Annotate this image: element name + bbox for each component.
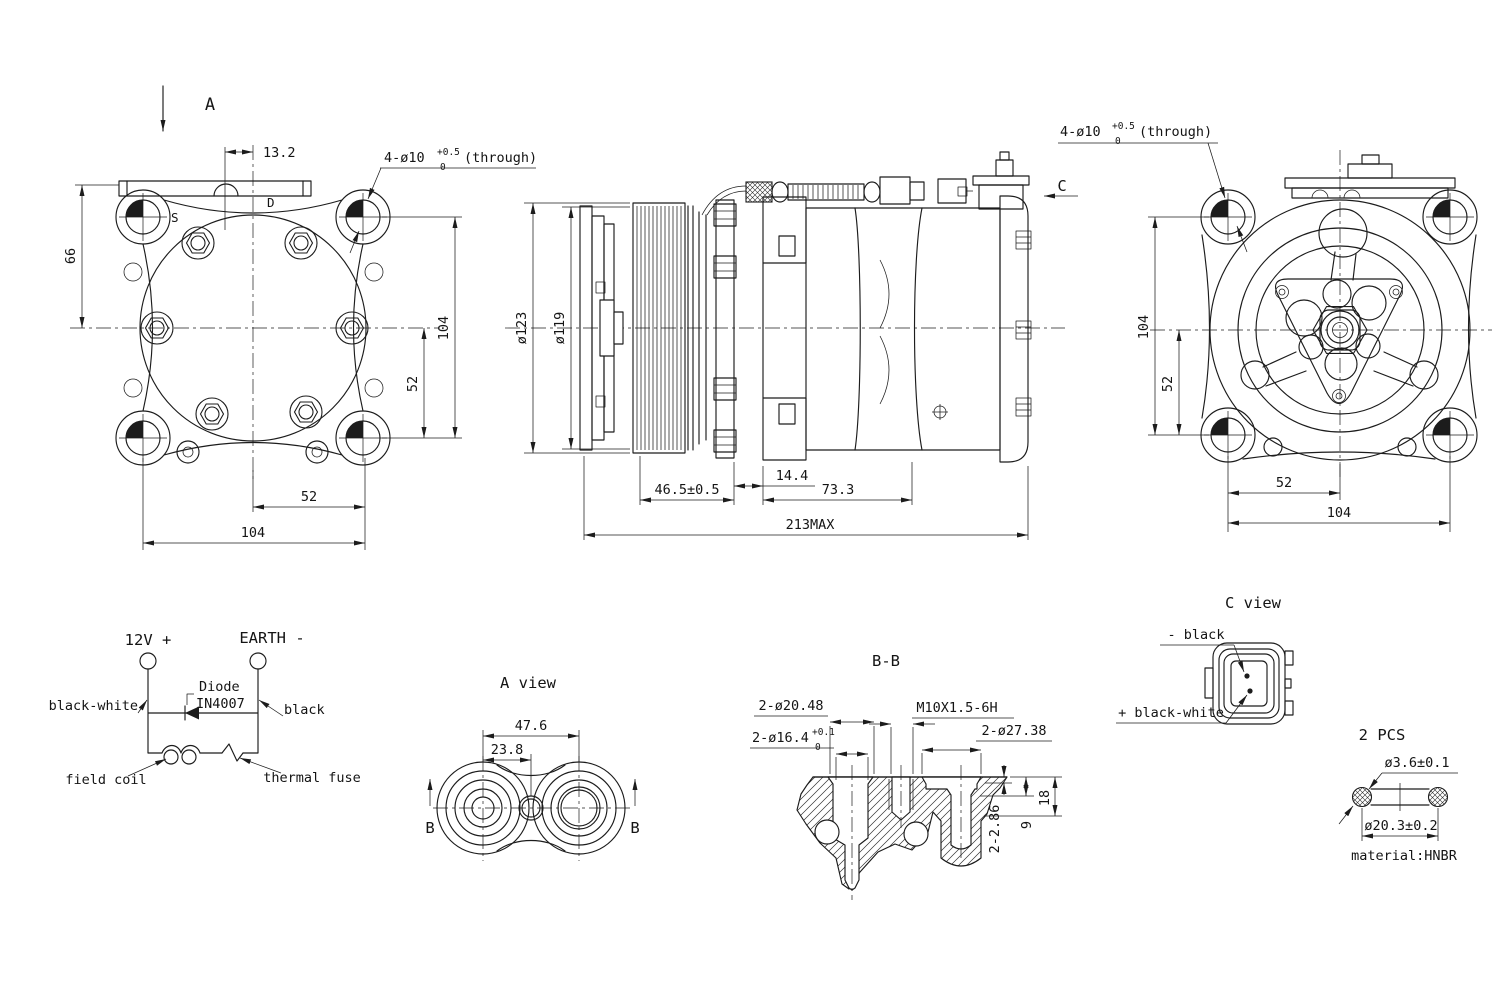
bb-note-16-4: 2-ø16.4 xyxy=(752,730,809,746)
front-dim-h104: 104 xyxy=(241,525,265,541)
bb-dim-18: 18 xyxy=(1037,790,1053,806)
mount-hole-rear-tl xyxy=(1201,190,1255,244)
side-dim-od: ø123 xyxy=(514,312,530,345)
bb-note-16-4-tol-up: +0.1 xyxy=(812,727,835,738)
c-view-pin-positive-label: + black-white xyxy=(1118,705,1224,721)
front-view: A 13.2 4-ø10 +0.5 0 (through) S D 66 104… xyxy=(63,86,537,550)
wire-positive-label: black-white xyxy=(49,698,138,714)
thermal-fuse-symbol xyxy=(222,744,243,761)
seal-quantity: 2 PCS xyxy=(1359,726,1406,744)
mount-hole-rear-br xyxy=(1423,408,1477,462)
bb-section-title: B-B xyxy=(872,652,900,670)
terminal-negative-label: EARTH - xyxy=(239,629,304,647)
electrical-schematic: 12V + EARTH - Diode IN4007 black-white b… xyxy=(49,629,361,788)
rear-bolts-side xyxy=(1016,231,1031,416)
rear-dim-v52: 52 xyxy=(1160,376,1176,392)
rear-hole-note-tol-up: +0.5 xyxy=(1112,121,1135,132)
c-view: C view - black + black-white xyxy=(1116,594,1293,724)
seal-material: material:HNBR xyxy=(1351,848,1458,864)
rear-dim-v104: 104 xyxy=(1136,315,1152,339)
rear-hole-note: 4-ø10 xyxy=(1060,124,1101,140)
seal-detail: 2 PCS ø3.6±0.1 ø20.3±0.2 material:HNBR xyxy=(1339,726,1458,864)
side-dim-46-5: 46.5±0.5 xyxy=(654,482,719,498)
rear-view-dimensions: 4-ø10 +0.5 0 (through) 104 52 52 104 xyxy=(1058,121,1450,532)
terminal-positive xyxy=(140,653,156,669)
side-dim-73-3: 73.3 xyxy=(822,482,855,498)
rear-hole-note-tol-dn: 0 xyxy=(1115,136,1121,147)
bb-note-16-4-tol-dn: 0 xyxy=(815,742,821,753)
clutch-plate xyxy=(1241,209,1438,404)
connector-pin-negative xyxy=(1244,673,1249,678)
side-view: ø123 ø119 14.4 46.5±0.5 73.3 213MAX C xyxy=(505,152,1078,540)
front-dim-v52: 52 xyxy=(405,376,421,392)
a-view-dim-23-8: 23.8 xyxy=(491,742,524,758)
rear-view: 4-ø10 +0.5 0 (through) 104 52 52 104 xyxy=(1058,121,1492,532)
front-port-s: S xyxy=(171,210,179,225)
bb-dim-9: 9 xyxy=(1019,821,1035,829)
front-hole-note-suffix: (through) xyxy=(464,150,537,166)
mount-hole-rear-bl xyxy=(1201,408,1255,462)
bb-thread-note: M10X1.5-6H xyxy=(916,700,997,716)
mount-hole-front-bl xyxy=(116,411,170,465)
a-view-title: A view xyxy=(500,674,557,692)
rear-dim-h52: 52 xyxy=(1276,475,1292,491)
front-view-dimensions: A 13.2 4-ø10 +0.5 0 (through) S D 66 104… xyxy=(63,86,537,550)
section-marker-b-left: B xyxy=(425,819,434,837)
port-fitting xyxy=(973,152,1029,209)
a-view: A view 47.6 23.8 B B xyxy=(425,674,639,861)
mount-hole-front-br xyxy=(336,411,390,465)
front-hole-note: 4-ø10 xyxy=(384,150,425,166)
bb-note-20-48: 2-ø20.48 xyxy=(758,698,823,714)
seal-dim-ring: ø20.3±0.2 xyxy=(1364,818,1437,834)
c-view-pin-negative-label: - black xyxy=(1168,627,1225,643)
field-coil-label: field coil xyxy=(65,772,146,788)
c-view-title: C view xyxy=(1225,594,1282,612)
seal-dim-cross-section: ø3.6±0.1 xyxy=(1384,755,1449,771)
front-hole-note-tol-up: +0.5 xyxy=(437,147,460,158)
wire-negative-label: black xyxy=(284,702,325,718)
rear-hole-note-suffix: (through) xyxy=(1139,124,1212,140)
front-dim-66: 66 xyxy=(63,248,79,264)
thermal-fuse-label: thermal fuse xyxy=(263,770,361,786)
bb-section-linework xyxy=(797,765,1007,900)
side-direction-label: C xyxy=(1057,177,1066,195)
front-dim-v104: 104 xyxy=(436,316,452,340)
terminal-negative xyxy=(250,653,266,669)
side-view-linework xyxy=(505,152,1065,462)
side-dim-total: 213MAX xyxy=(786,517,835,533)
a-view-dim-47-6: 47.6 xyxy=(515,718,548,734)
drawing-sheet: A 13.2 4-ø10 +0.5 0 (through) S D 66 104… xyxy=(0,0,1495,1000)
bb-dim-2-86: 2-2.86 xyxy=(987,805,1003,854)
mount-hole-front-tr xyxy=(336,190,390,244)
diode-label-1: Diode xyxy=(199,679,240,695)
front-direction-label: A xyxy=(205,95,215,115)
a-view-linework xyxy=(433,756,633,861)
side-view-dimensions: ø123 ø119 14.4 46.5±0.5 73.3 213MAX C xyxy=(514,177,1078,540)
side-dim-pd: ø119 xyxy=(552,312,568,345)
diode-label-2: IN4007 xyxy=(196,696,245,712)
front-hole-note-tol-dn: 0 xyxy=(440,162,446,173)
front-dim-h52: 52 xyxy=(301,489,317,505)
wiring-harness xyxy=(702,177,973,215)
front-port-d: D xyxy=(267,195,275,210)
connector-pin-positive xyxy=(1247,688,1252,693)
terminal-positive-label: 12V + xyxy=(125,631,172,649)
bb-section: B-B 2-ø20.48 2-ø16.4 +0.1 0 M10X1.5-6H 2… xyxy=(750,652,1062,900)
mount-hole-front-tl xyxy=(116,190,170,244)
rear-dim-h104: 104 xyxy=(1327,505,1351,521)
o-ring-linework xyxy=(1353,783,1448,811)
compressor-technical-drawing: A 13.2 4-ø10 +0.5 0 (through) S D 66 104… xyxy=(0,0,1495,1000)
section-marker-b-right: B xyxy=(630,819,639,837)
mount-hole-rear-tr xyxy=(1423,190,1477,244)
front-dim-13-2: 13.2 xyxy=(263,145,296,161)
bb-note-27-38: 2-ø27.38 xyxy=(981,723,1046,739)
rear-view-linework xyxy=(1150,150,1492,478)
front-view-linework xyxy=(70,145,440,482)
side-dim-14-4: 14.4 xyxy=(776,468,809,484)
